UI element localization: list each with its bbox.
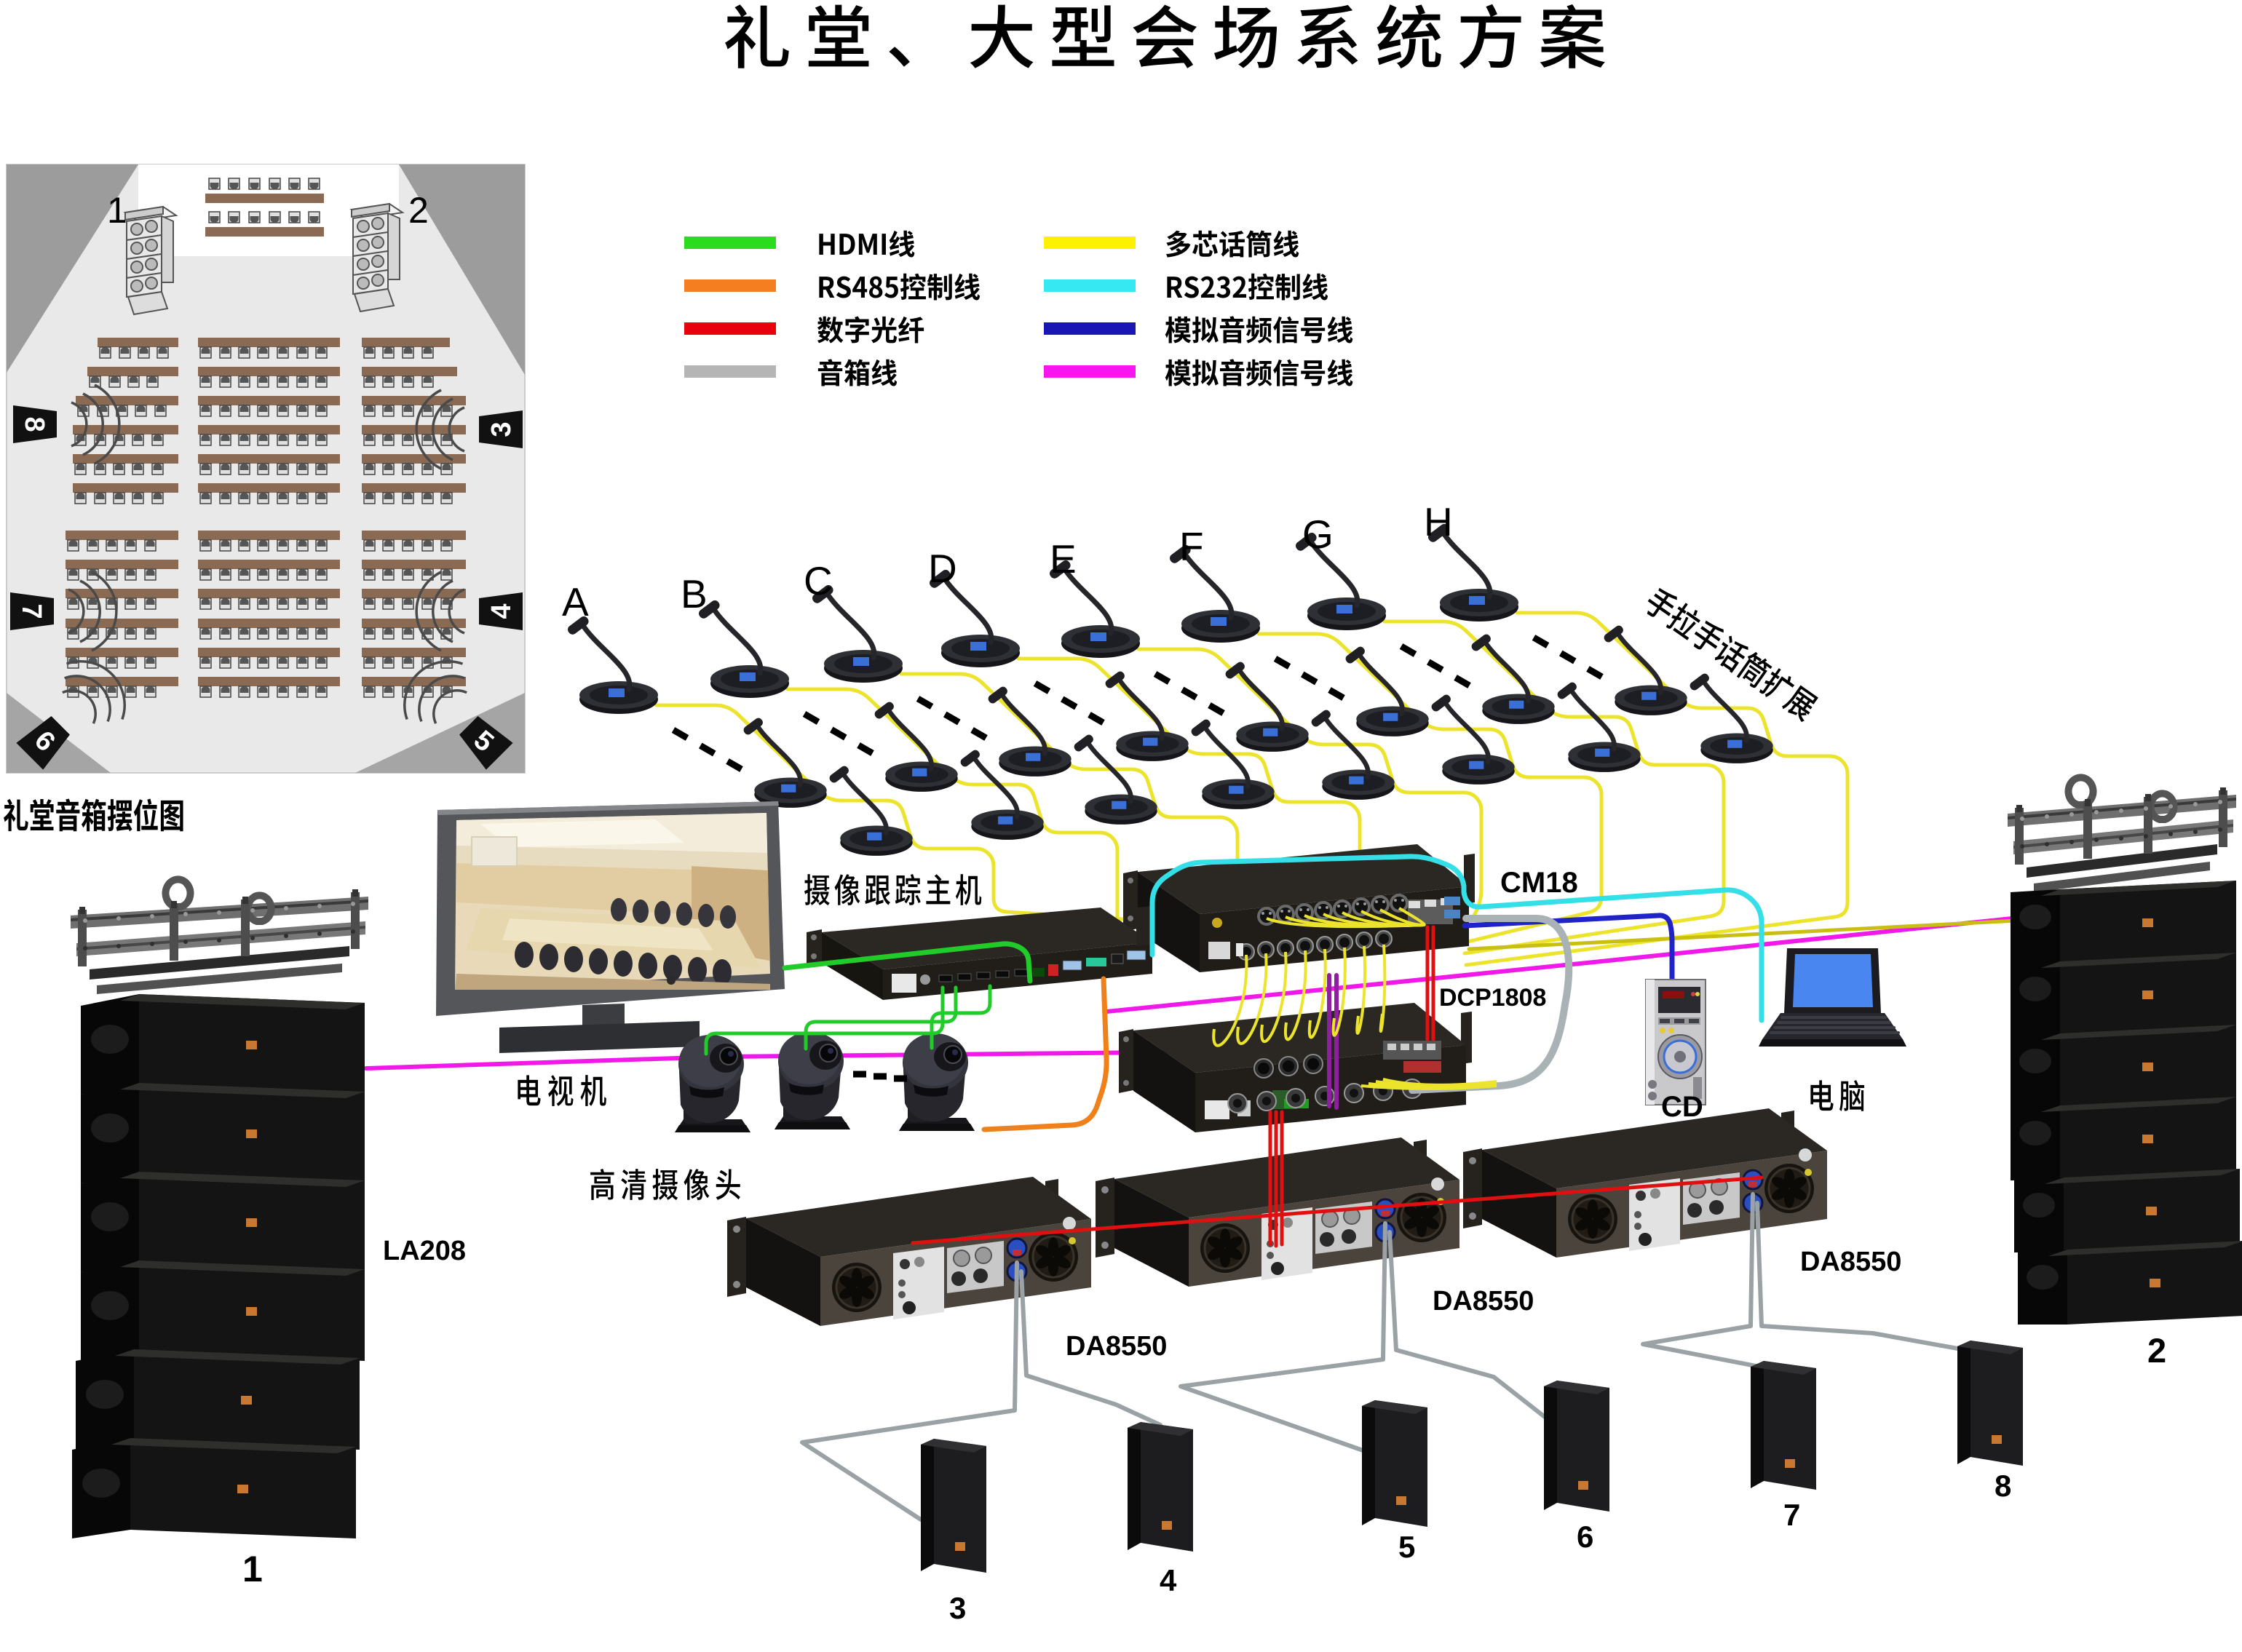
svg-text:DA8550: DA8550 [1800,1247,1901,1277]
svg-text:8: 8 [19,416,49,432]
svg-text:CM18: CM18 [1500,867,1578,899]
svg-text:DA8550: DA8550 [1433,1286,1534,1317]
svg-text:7: 7 [16,603,47,619]
svg-text:7: 7 [1783,1498,1800,1532]
svg-text:CD: CD [1661,1091,1703,1123]
svg-text:2: 2 [408,190,429,231]
svg-text:D: D [928,546,957,591]
svg-text:B: B [681,571,708,616]
svg-text:3: 3 [486,421,517,437]
svg-text:G: G [1302,512,1334,557]
svg-text:8: 8 [1995,1469,2011,1503]
svg-text:DCP1808: DCP1808 [1439,984,1546,1012]
svg-text:E: E [1050,536,1077,581]
svg-text:DA8550: DA8550 [1066,1331,1167,1362]
svg-text:F: F [1179,524,1204,569]
svg-text:H: H [1424,499,1453,544]
svg-text:4: 4 [486,603,517,619]
svg-text:4: 4 [1160,1563,1177,1597]
svg-text:3: 3 [949,1591,966,1625]
svg-text:1: 1 [242,1549,263,1589]
svg-text:5: 5 [1398,1530,1415,1564]
svg-text:A: A [562,579,589,624]
svg-text:C: C [804,558,833,603]
svg-text:LA208: LA208 [383,1236,466,1266]
svg-text:1: 1 [107,190,127,231]
svg-text:6: 6 [1577,1520,1593,1554]
svg-text:2: 2 [2147,1331,2166,1370]
